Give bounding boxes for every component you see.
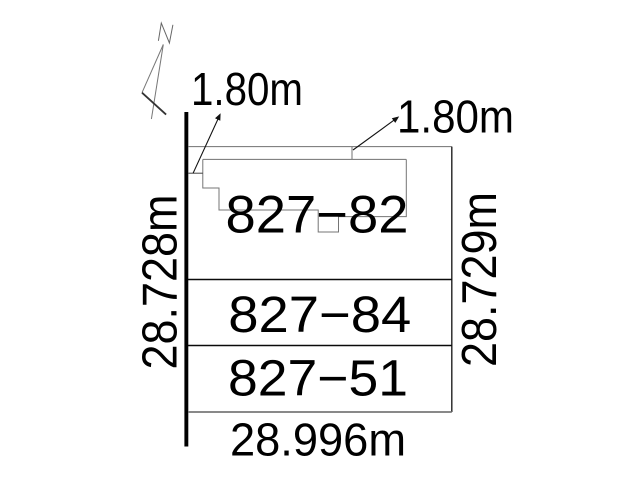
svg-text:827−84: 827−84 — [228, 286, 411, 343]
svg-text:28.728m: 28.728m — [134, 195, 188, 370]
svg-text:28.996m: 28.996m — [230, 414, 406, 466]
svg-text:1.80m: 1.80m — [191, 63, 303, 115]
svg-text:1.80m: 1.80m — [397, 91, 514, 143]
svg-text:28.729m: 28.729m — [453, 192, 507, 367]
svg-text:827−51: 827−51 — [228, 350, 408, 407]
svg-text:827−82: 827−82 — [226, 185, 409, 244]
